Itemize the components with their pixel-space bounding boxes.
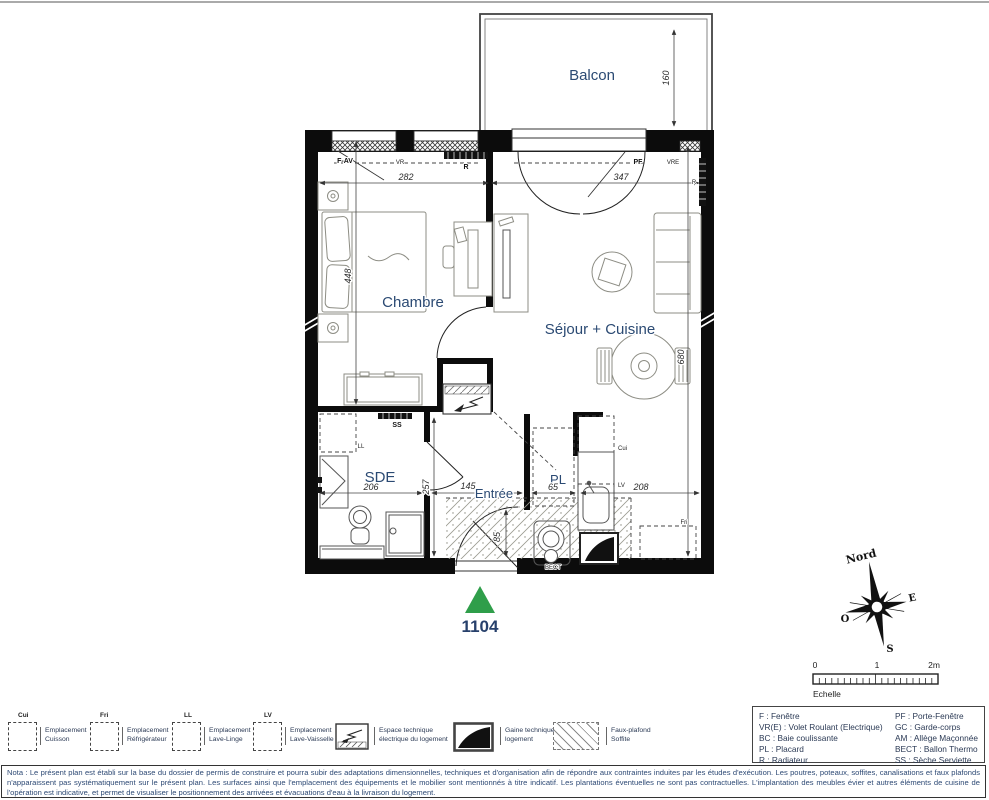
dim-sde-width: 206: [362, 482, 378, 492]
window-f-av: [332, 131, 396, 180]
abbr-bc: BC : Baie coulissante: [759, 733, 887, 744]
dim-chambre-width: 282: [397, 172, 413, 182]
compass-south-label: S: [886, 644, 893, 655]
tag-r-top: R: [463, 164, 468, 171]
scale-2m: 2m: [928, 660, 940, 670]
washer-slot: [320, 414, 356, 452]
cooktop-slot: [578, 416, 614, 452]
dim-cuisine-width: 208: [632, 482, 648, 492]
gaine-technique-label: Gaine technique logement: [500, 727, 555, 745]
legend-fri-box-icon: [90, 722, 119, 751]
gaine-technique: [580, 533, 618, 564]
gaine-technique-icon: [453, 722, 494, 752]
tag-lv: LV: [618, 483, 625, 489]
unit-number: 1104: [462, 617, 499, 636]
legend-lv-label: Emplacement Lave-Vaisselle: [285, 727, 334, 745]
abbr-pf: PF : Porte-Fenêtre: [895, 711, 978, 722]
scale-0: 0: [813, 660, 818, 670]
nota-text: Nota : Le présent plan est établi sur la…: [1, 765, 986, 798]
entrance-marker-triangle: [465, 586, 495, 613]
hall-and-kitchen: [443, 384, 696, 565]
dim-chambre-length: 448: [343, 268, 353, 283]
abbr-pl: PL : Placard: [759, 744, 887, 755]
scale-label: Echelle: [813, 689, 841, 699]
kitchen-sink: [578, 452, 614, 530]
legend-fri-label: Emplacement Réfrigérateur: [122, 727, 169, 745]
dim-balcon-depth: 160: [661, 70, 671, 85]
shower: [317, 456, 348, 508]
tv-unit: [494, 214, 528, 312]
faux-plafond-icon: [553, 722, 599, 750]
abbr-f: F : Fenêtre: [759, 711, 887, 722]
compass-rose-icon: Nord E O S: [837, 546, 917, 655]
legend-cui-label: Emplacement Cuisson: [40, 727, 87, 745]
compass-north-label: Nord: [845, 546, 878, 566]
towel-radiator-ss: [378, 413, 412, 419]
tag-r-right: R: [692, 180, 697, 186]
legend-ll-label: Emplacement Lave-Linge: [204, 727, 251, 745]
tag-cui: Cui: [618, 446, 627, 452]
sofa: [654, 213, 701, 313]
tag-pf: PF: [634, 159, 644, 166]
abbreviations-left-column: F : Fenêtre VR(E) : Volet Roulant (Elect…: [759, 711, 887, 758]
legend-cui-box-icon: [8, 722, 37, 751]
dim-sde-length: 257: [421, 479, 431, 496]
bathroom-cabinet: [386, 512, 424, 556]
faux-plafond-label: Faux-plafond Soffite: [606, 727, 651, 745]
compass-east-label: E: [908, 592, 918, 604]
espace-technique-box: [443, 384, 491, 414]
toilet: [349, 506, 371, 544]
abbreviations-box: F : Fenêtre VR(E) : Volet Roulant (Elect…: [752, 706, 985, 763]
tag-vre: VRE: [667, 160, 679, 166]
tag-bect: BECT: [545, 565, 561, 571]
abbreviations-right-column: PF : Porte-Fenêtre GC : Garde-corps AM :…: [895, 711, 978, 758]
balcon-label: Balcon: [569, 67, 615, 84]
radiator-right: [699, 158, 706, 206]
espace-technique-icon: [335, 723, 369, 750]
dining-table: [597, 333, 690, 399]
floor-plan-drawing: Balcon 160: [0, 0, 989, 705]
compass-west-label: O: [841, 614, 850, 625]
legend-ll-tag: LL: [184, 712, 192, 719]
dim-entree-door: 85: [492, 531, 502, 542]
tag-vr: VR: [396, 160, 405, 166]
legend-ll-box-icon: [172, 722, 201, 751]
abbr-bect: BECT : Ballon Thermo: [895, 744, 978, 755]
placard-box: [533, 428, 574, 506]
radiator-top: [444, 152, 488, 159]
vanity: [320, 546, 384, 559]
abbr-vre: VR(E) : Volet Roulant (Electrique): [759, 722, 887, 733]
abbr-gc: GC : Garde-corps: [895, 722, 978, 733]
abbr-am: AM : Allège Maçonnée: [895, 733, 978, 744]
tag-ll: LL: [358, 444, 365, 450]
living-furniture: [494, 213, 701, 399]
legend-cui-tag: Cui: [18, 712, 28, 719]
scale-1: 1: [875, 660, 880, 670]
chambre-label: Chambre: [382, 294, 444, 311]
legend-lv-tag: LV: [264, 712, 272, 719]
sejour-label: Séjour + Cuisine: [545, 321, 655, 338]
legend-lv-box-icon: [253, 722, 282, 751]
tag-fri: Fri: [681, 520, 688, 526]
balcony: Balcon 160: [480, 14, 712, 135]
dim-sejour-width: 347: [613, 172, 629, 182]
dim-sejour-length: 680: [676, 349, 686, 364]
tag-f-av: F-AV: [337, 158, 353, 165]
scale-bar: 0 1 2m Echelle: [813, 660, 940, 699]
espace-technique-label: Espace technique électrique du logement: [374, 727, 448, 745]
tag-ss: SS: [392, 422, 402, 429]
desk-chair: [443, 246, 454, 268]
entree-label: Entrée: [475, 486, 513, 501]
window-chambre-2: [414, 131, 478, 151]
dim-entree-width: 145: [460, 481, 476, 491]
floor-plan-sheet: { "plan": { "unit_number": "1104", "room…: [0, 0, 989, 800]
dim-placard-width: 65: [548, 482, 559, 492]
legend-fri-tag: Fri: [100, 712, 108, 719]
